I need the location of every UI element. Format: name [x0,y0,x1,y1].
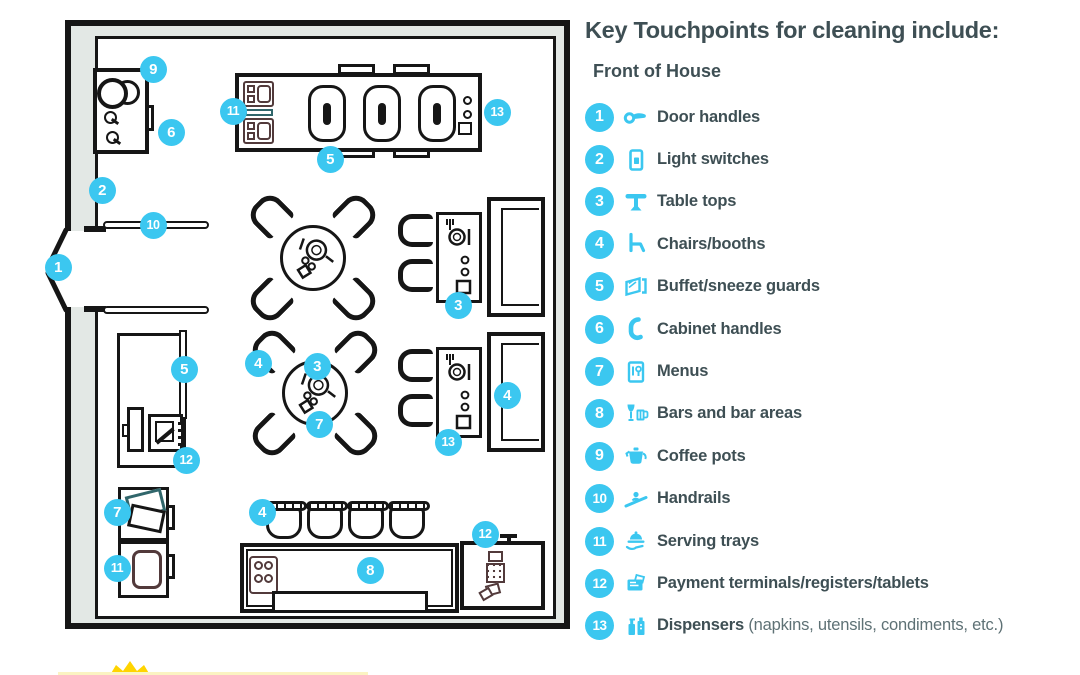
booth-bench-1 [487,197,545,317]
plan-marker-1: 1 [45,254,72,281]
dining-table-1 [280,225,346,291]
legend-num-12: 12 [585,569,614,598]
place-setting-icon [439,350,479,435]
coffee-cup-1 [104,111,117,124]
sneeze-guard-icon [621,274,651,300]
coffee-cup-2 [106,131,119,144]
bar-icon [621,401,651,427]
booth-chair [398,214,433,247]
booth-chair [398,349,433,382]
plan-marker-12: 12 [173,447,200,474]
legend-label: Dispensers (napkins, utensils, condiment… [657,616,1003,635]
legend-list: 1 Door handles 2 Light switches 3 [585,96,1080,647]
legend-item-12: 12 Payment terminals/registers/tablets [585,562,1080,604]
chair-icon [621,231,651,257]
plan-marker-3: 3 [445,292,472,319]
glass-tray [249,556,278,594]
legend-item-2: 2 Light switches [585,138,1080,180]
legend-item-10: 10 Handrails [585,478,1080,520]
plan-marker-10: 10 [140,212,167,239]
legend-label: Chairs/booths [657,235,765,254]
legend-item-8: 8 Bars and bar areas [585,393,1080,435]
page: 1296101151334374135127114812 Key Touchpo… [0,0,1080,675]
light-switch-icon [621,147,651,173]
legend-item-4: 4 Chairs/booths [585,223,1080,265]
legend-label: Cabinet handles [657,320,781,339]
menu-icon [621,359,651,385]
handrail-icon [621,486,651,512]
cabinet-handle [147,105,154,131]
legend-label-suffix: (napkins, utensils, condiments, etc.) [744,616,1003,634]
plan-marker-5: 5 [317,146,344,173]
legend-label: Bars and bar areas [657,404,802,423]
booth-chair [398,259,433,292]
booth-table-2 [436,347,482,438]
payment-terminal-icon [621,570,651,596]
bar-stool [389,505,425,539]
plan-marker-5: 5 [171,356,198,383]
legend-label: Buffet/sneeze guards [657,277,820,296]
bar-stool [348,505,384,539]
plan-marker-9: 9 [140,56,167,83]
legend-title: Key Touchpoints for cleaning include: [585,17,1077,44]
plan-marker-13: 13 [484,99,511,126]
legend-num-4: 4 [585,230,614,259]
handrail-bottom [103,306,209,314]
plan-marker-4: 4 [245,350,272,377]
place-setting-icon [283,228,343,288]
legend-num-8: 8 [585,399,614,428]
legend-item-13: 13 Dispensers (napkins, utensils, condim… [585,605,1080,647]
legend-item-7: 7 Menus [585,350,1080,392]
legend-label: Door handles [657,108,760,127]
plan-marker-7: 7 [306,411,333,438]
buffet-well-2 [363,85,401,142]
legend-num-3: 3 [585,187,614,216]
legend-label: Payment terminals/registers/tablets [657,574,929,593]
stand-handle [168,505,175,530]
legend-label: Menus [657,362,708,381]
serving-tray-1 [243,81,274,107]
bar-stool [307,505,343,539]
coffee-pot-large [97,78,128,109]
legend-item-6: 6 Cabinet handles [585,308,1080,350]
dispenser-box [458,122,472,135]
plan-marker-11: 11 [220,98,247,125]
plan-marker-12: 12 [472,521,499,548]
legend-label: Coffee pots [657,447,746,466]
serving-tray-icon [621,528,651,554]
legend-num-9: 9 [585,442,614,471]
booth-chair [398,394,433,427]
legend-num-2: 2 [585,145,614,174]
coffee-pot-icon [621,443,651,469]
plan-marker-2: 2 [89,177,116,204]
legend-label: Table tops [657,192,736,211]
buffet-well-1 [308,85,346,142]
legend-num-1: 1 [585,103,614,132]
legend-num-11: 11 [585,527,614,556]
buffet-well-3 [418,85,456,142]
plan-marker-7: 7 [104,499,131,526]
plan-marker-8: 8 [357,557,384,584]
plan-marker-3: 3 [304,353,331,380]
pos-monitor [127,407,144,452]
plan-marker-4: 4 [249,499,276,526]
dispenser-dot-1 [463,96,472,105]
legend-num-10: 10 [585,484,614,513]
serving-tray-2 [243,118,274,144]
plan-marker-6: 6 [158,119,185,146]
booth-table-1 [436,212,482,303]
legend-num-5: 5 [585,272,614,301]
plan-marker-13: 13 [435,429,462,456]
place-setting-icon [439,215,479,300]
legend-item-9: 9 Coffee pots [585,435,1080,477]
legend-item-11: 11 Serving trays [585,520,1080,562]
plan-marker-11: 11 [104,555,131,582]
legend-num-13: 13 [585,611,614,640]
tray-divider [245,109,273,116]
pos-terminal [148,414,183,452]
table-icon [621,189,651,215]
legend-item-3: 3 Table tops [585,181,1080,223]
plan-marker-4: 4 [494,382,521,409]
dispenser-dot-2 [463,110,472,119]
cabinet-handle-icon [621,316,651,342]
legend-item-1: 1 Door handles [585,96,1080,138]
legend-num-6: 6 [585,315,614,344]
dispenser-icon [621,613,651,639]
legend-label: Serving trays [657,532,759,551]
legend-label: Handrails [657,489,730,508]
legend-subtitle: Front of House [593,61,721,82]
serving-tray-3 [132,550,162,589]
legend-item-5: 5 Buffet/sneeze guards [585,266,1080,308]
legend-num-7: 7 [585,357,614,386]
legend-label: Light switches [657,150,769,169]
stand-hook [507,534,511,543]
door-handle-icon [621,104,651,130]
stand-handle [168,554,175,579]
back-bar [272,591,428,613]
